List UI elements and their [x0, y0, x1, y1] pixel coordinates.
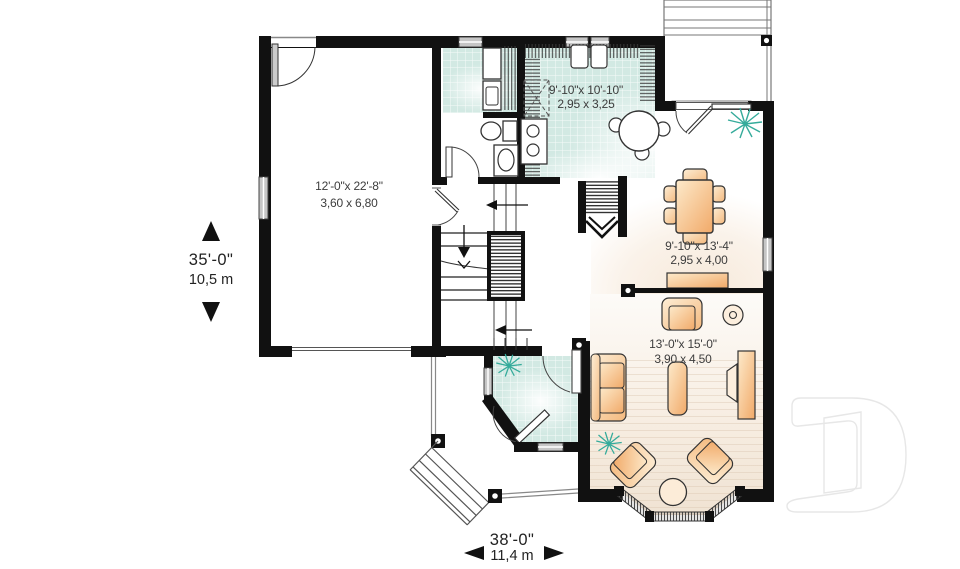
svg-text:9'-10"x 10'-10": 9'-10"x 10'-10"	[549, 83, 623, 97]
svg-text:12'-0"x 22'-8": 12'-0"x 22'-8"	[315, 179, 383, 193]
svg-text:3,90 x 4,50: 3,90 x 4,50	[654, 352, 712, 366]
svg-text:13'-0"x 15'-0": 13'-0"x 15'-0"	[649, 337, 717, 351]
svg-text:2,95 x 3,25: 2,95 x 3,25	[557, 97, 615, 111]
svg-text:38'-0": 38'-0"	[490, 531, 534, 549]
svg-text:10,5 m: 10,5 m	[189, 272, 233, 288]
svg-text:9'-10"x 13'-4": 9'-10"x 13'-4"	[665, 239, 733, 253]
svg-text:35'-0": 35'-0"	[189, 251, 233, 269]
svg-text:3,60 x 6,80: 3,60 x 6,80	[320, 196, 378, 210]
svg-text:11,4 m: 11,4 m	[490, 548, 533, 564]
svg-text:2,95 x 4,00: 2,95 x 4,00	[670, 253, 728, 267]
